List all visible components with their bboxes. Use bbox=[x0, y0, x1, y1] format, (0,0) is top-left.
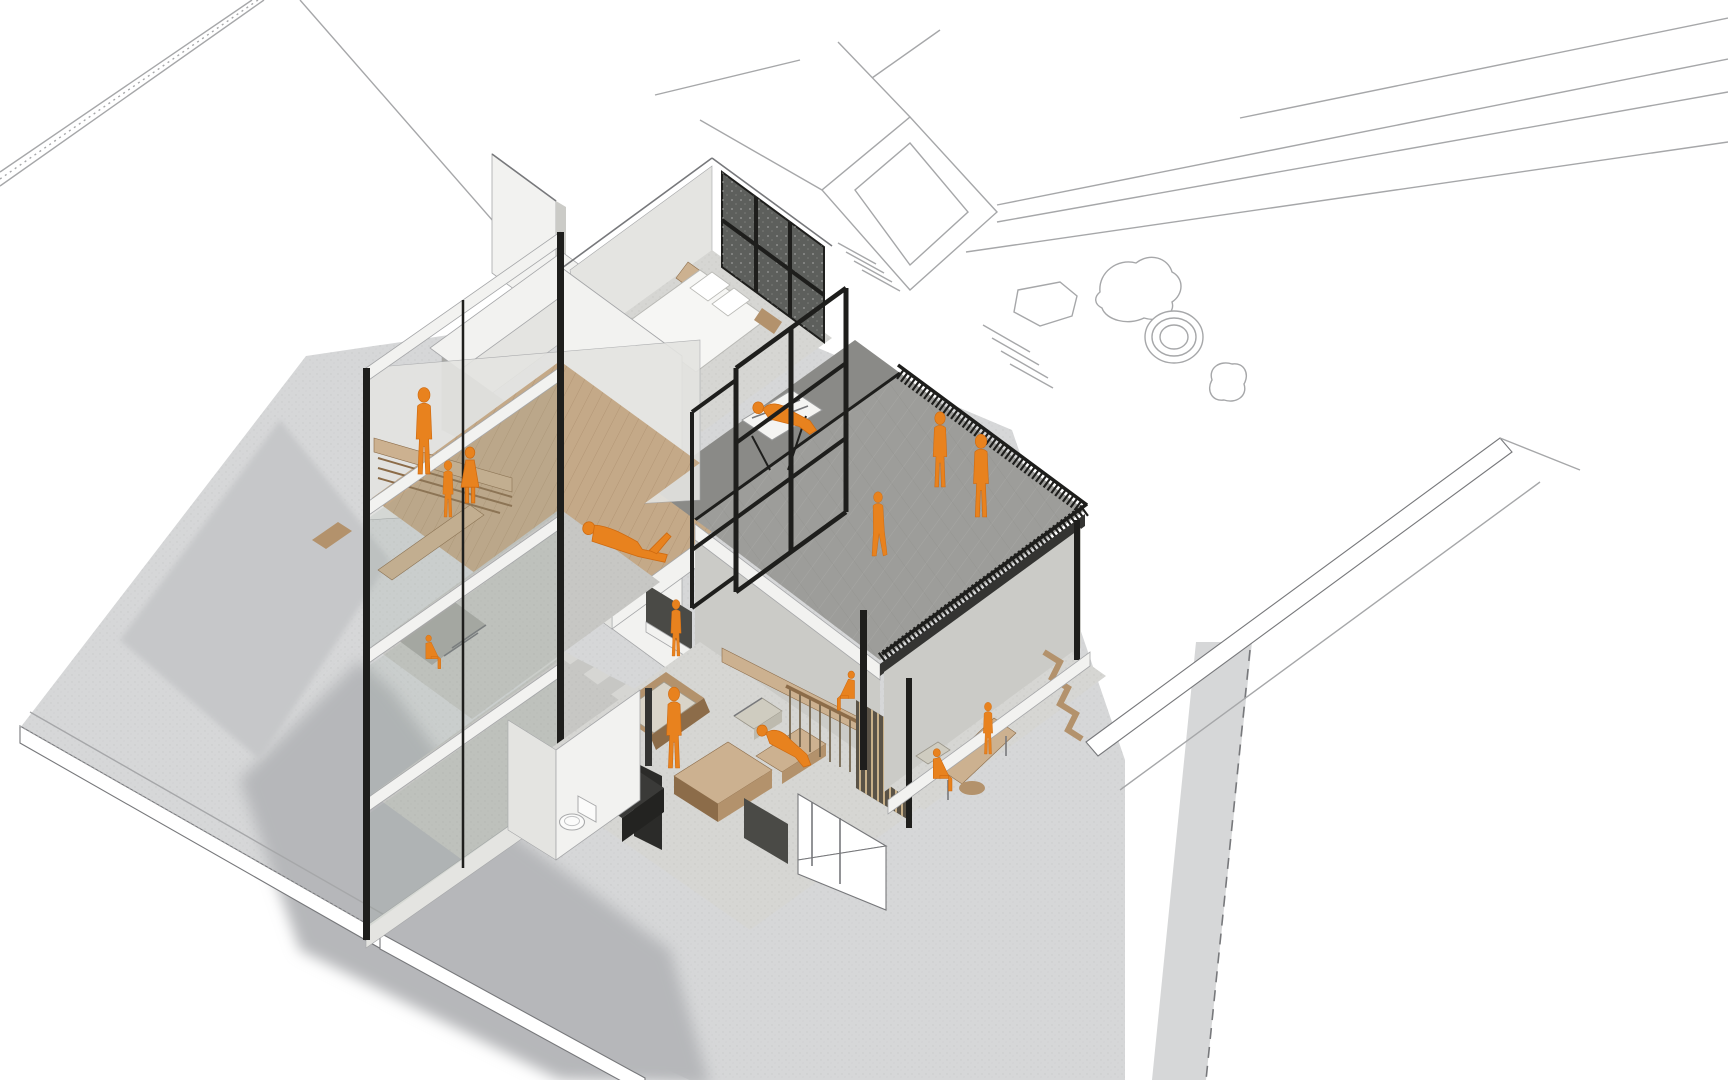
water-basin bbox=[1145, 311, 1203, 363]
corner-column-east bbox=[1074, 520, 1080, 660]
corner-column-west bbox=[363, 368, 370, 940]
stove-flue-pipe bbox=[645, 688, 652, 766]
axonometric-house-rendering bbox=[0, 0, 1728, 1080]
living-dining-column bbox=[860, 610, 867, 770]
column-center bbox=[557, 232, 564, 800]
dining-column-left bbox=[906, 678, 912, 828]
dining-stool bbox=[959, 781, 985, 795]
rock-small bbox=[1210, 363, 1247, 401]
render-viewport bbox=[0, 0, 1728, 1080]
